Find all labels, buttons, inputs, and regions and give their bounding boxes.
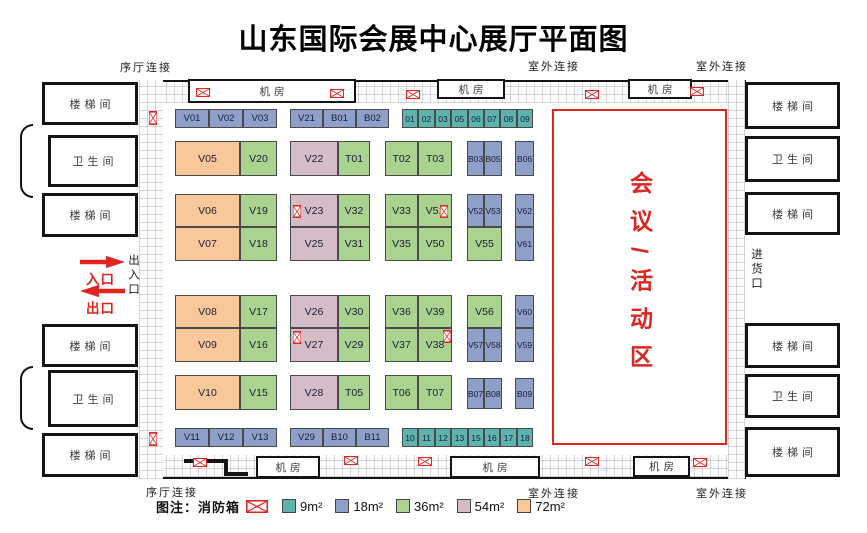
fire-box-icon (246, 500, 268, 513)
booth-B10: B10 (323, 428, 356, 447)
booth-V28: V28 (290, 375, 338, 410)
booth-V20: V20 (240, 141, 277, 176)
booth-03: 03 (435, 109, 451, 128)
fire-box-icon (690, 87, 704, 96)
legend-item-label: 9m² (300, 499, 322, 514)
booth-B03: B03 (467, 141, 484, 176)
room-stairwell: 楼梯间 (42, 82, 138, 125)
booth-T02: T02 (385, 141, 418, 176)
booth-V03: V03 (243, 109, 277, 128)
booth-V50: V50 (418, 227, 452, 261)
booth-T05: T05 (338, 375, 370, 410)
corridor-label: 室外连接 (696, 58, 748, 74)
booth-V36: V36 (385, 295, 418, 328)
booth-V12: V12 (209, 428, 243, 447)
booth-V39: V39 (418, 295, 452, 328)
fire-box-icon (344, 456, 358, 465)
room-restroom: 卫生间 (745, 374, 840, 418)
fire-box-icon (585, 90, 599, 99)
booth-V06: V06 (175, 194, 240, 227)
booth-16: 16 (484, 428, 500, 447)
booth-V13: V13 (243, 428, 277, 447)
entrance-out-label: 出口 (86, 297, 115, 317)
corridor-label: 室外连接 (696, 485, 748, 501)
booth-02: 02 (418, 109, 435, 128)
fire-box-icon (440, 205, 448, 218)
conference-area: 会议/活动区 (552, 109, 727, 445)
fire-box-icon (585, 457, 599, 466)
booth-V61: V61 (515, 227, 534, 261)
legend-items: 9m²18m²36m²54m²72m² (282, 499, 578, 514)
booth-B06: B06 (515, 141, 534, 176)
booth-11: 11 (418, 428, 435, 447)
booth-18: 18 (517, 428, 533, 447)
booth-B09: B09 (515, 378, 534, 409)
booth-V55: V55 (467, 227, 502, 261)
booth-V18: V18 (240, 227, 277, 261)
booth-12: 12 (435, 428, 451, 447)
booth-V22: V22 (290, 141, 338, 176)
conference-label: 会议/活动区 (623, 171, 657, 382)
booth-V52: V52 (467, 194, 484, 227)
booth-V21: V21 (290, 109, 323, 128)
legend-item-label: 36m² (414, 499, 444, 514)
booth-V17: V17 (240, 295, 277, 328)
booth-T01: T01 (338, 141, 370, 176)
booth-09: 09 (517, 109, 533, 128)
booth-T07: T07 (418, 375, 452, 410)
booth-V07: V07 (175, 227, 240, 261)
room-restroom: 卫生间 (48, 370, 138, 427)
booth-V15: V15 (240, 375, 277, 410)
entrance-in-arrow-icon (80, 255, 125, 269)
booth-05: 05 (451, 109, 468, 128)
booth-V05: V05 (175, 141, 240, 176)
legend-item-9m²: 9m² (282, 499, 322, 514)
booth-15: 15 (468, 428, 484, 447)
legend-item-label: 18m² (353, 499, 383, 514)
booth-17: 17 (500, 428, 517, 447)
legend-item-72m²: 72m² (517, 499, 565, 514)
booth-V37: V37 (385, 328, 418, 362)
booth-V53: V53 (484, 194, 502, 227)
booth-V08: V08 (175, 295, 240, 328)
booth-10: 10 (402, 428, 418, 447)
legend-item-36m²: 36m² (396, 499, 444, 514)
goods-entrance-label: 进货口 (748, 248, 764, 292)
legend-swatch (335, 499, 349, 513)
fire-box-icon (193, 458, 207, 467)
booth-V29: V29 (290, 428, 323, 447)
booth-V01: V01 (175, 109, 209, 128)
legend-swatch (457, 499, 471, 513)
booth-V30: V30 (338, 295, 370, 328)
booth-V32: V32 (338, 194, 370, 227)
corridor-left (139, 80, 163, 479)
fire-box-icon (149, 432, 157, 446)
fire-box-icon (406, 90, 420, 99)
room-stairwell: 楼梯间 (42, 193, 138, 237)
machine-room: 机房 (450, 456, 540, 478)
legend-title: 图注： (156, 497, 198, 516)
booth-V58: V58 (484, 328, 502, 362)
booth-V62: V62 (515, 194, 534, 227)
booth-B08: B08 (484, 378, 502, 409)
legend-item-18m²: 18m² (335, 499, 383, 514)
machine-room: 机房 (633, 456, 690, 477)
booth-V19: V19 (240, 194, 277, 227)
fire-box-icon (196, 88, 210, 97)
booth-V16: V16 (240, 328, 277, 362)
legend-swatch (517, 499, 531, 513)
corridor-label: 序厅连接 (120, 59, 172, 75)
booth-B11: B11 (356, 428, 389, 447)
corridor-right (728, 80, 745, 479)
booth-V35: V35 (385, 227, 418, 261)
fire-box-icon (443, 330, 451, 343)
room-stairwell: 楼梯间 (42, 433, 138, 477)
fire-box-icon (293, 331, 301, 344)
entrance-side-label: 出入口 (125, 254, 141, 298)
booth-B05: B05 (484, 141, 502, 176)
fire-box-label: 消防箱 (198, 497, 240, 516)
page-title: 山东国际会展中心展厅平面图 (0, 16, 867, 58)
booth-01: 01 (402, 109, 418, 128)
machine-room: 机房 (256, 456, 320, 478)
legend-swatch (396, 499, 410, 513)
booth-V33: V33 (385, 194, 418, 227)
booth-07: 07 (484, 109, 500, 128)
booth-08: 08 (500, 109, 517, 128)
booth-V29: V29 (338, 328, 370, 362)
fire-box-icon (293, 205, 301, 218)
wall-bracket (20, 366, 33, 430)
booth-V10: V10 (175, 375, 240, 410)
booth-V59: V59 (515, 328, 534, 362)
fire-box-icon (693, 458, 707, 467)
room-stairwell: 楼梯间 (745, 427, 840, 477)
machine-room: 机房 (628, 79, 692, 99)
corridor-label: 室外连接 (528, 58, 580, 74)
booth-V31: V31 (338, 227, 370, 261)
entrance-in-label: 入口 (86, 268, 115, 288)
booth-V60: V60 (515, 295, 534, 328)
booth-V56: V56 (467, 295, 502, 328)
booth-B02: B02 (356, 109, 389, 128)
room-restroom: 卫生间 (745, 136, 840, 182)
room-stairwell: 楼梯间 (745, 192, 840, 235)
legend-item-label: 72m² (535, 499, 565, 514)
legend-item-label: 54m² (475, 499, 505, 514)
room-stairwell: 楼梯间 (745, 82, 840, 129)
wall-segment (224, 472, 248, 476)
booth-V09: V09 (175, 328, 240, 362)
booth-13: 13 (451, 428, 468, 447)
legend-swatch (282, 499, 296, 513)
room-restroom: 卫生间 (48, 135, 138, 187)
booth-B07: B07 (467, 378, 484, 409)
booth-V25: V25 (290, 227, 338, 261)
room-stairwell: 楼梯间 (42, 324, 138, 367)
booth-V26: V26 (290, 295, 338, 328)
legend-item-54m²: 54m² (457, 499, 505, 514)
booth-V02: V02 (209, 109, 243, 128)
legend: 图注： 消防箱 9m²18m²36m²54m²72m² (156, 495, 578, 517)
room-stairwell: 楼梯间 (745, 323, 840, 368)
booth-T06: T06 (385, 375, 418, 410)
machine-room: 机房 (437, 79, 505, 99)
fire-box-icon (330, 89, 344, 98)
fire-box-icon (418, 457, 432, 466)
booth-06: 06 (468, 109, 484, 128)
booth-B01: B01 (323, 109, 356, 128)
fire-box-icon (149, 111, 157, 125)
booth-T03: T03 (418, 141, 452, 176)
wall-bracket (20, 124, 33, 198)
booth-V57: V57 (467, 328, 484, 362)
booth-V11: V11 (175, 428, 209, 447)
floor-plan: 山东国际会展中心展厅平面图 楼梯间卫生间楼梯间楼梯间卫生间楼梯间楼梯间卫生间楼梯… (0, 0, 867, 533)
